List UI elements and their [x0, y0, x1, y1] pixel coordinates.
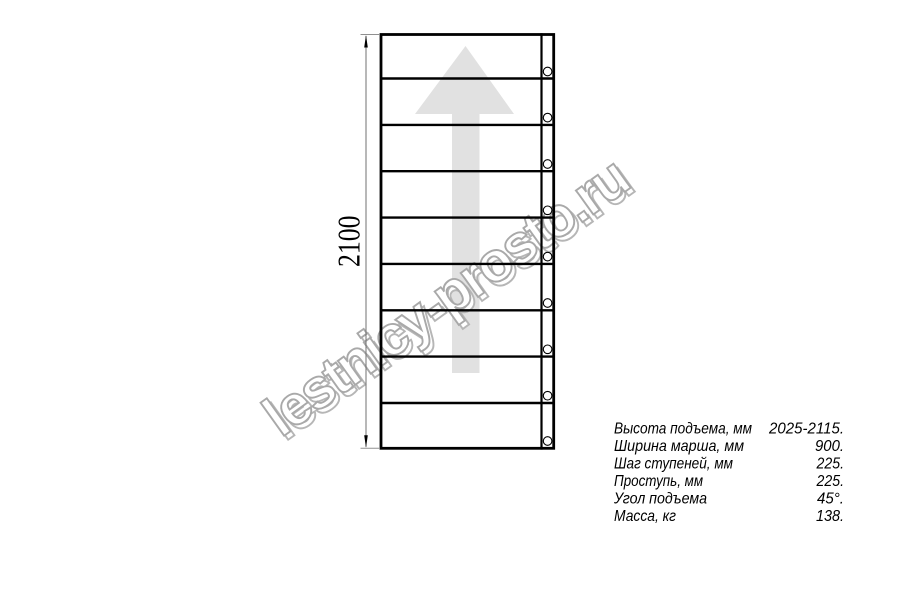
svg-text:2100: 2100 — [331, 216, 367, 268]
svg-text:2025-2115.: 2025-2115. — [768, 421, 844, 438]
svg-text:45°.: 45°. — [817, 491, 844, 508]
svg-text:225.: 225. — [816, 473, 844, 490]
svg-text:Ширина марша, мм: Ширина марша, мм — [614, 438, 744, 455]
svg-text:Угол подъема: Угол подъема — [613, 491, 707, 508]
svg-text:Проступь, мм: Проступь, мм — [614, 473, 703, 490]
svg-text:225.: 225. — [816, 456, 844, 473]
svg-text:900.: 900. — [815, 438, 844, 455]
svg-text:138.: 138. — [816, 508, 844, 525]
svg-text:Масса, кг: Масса, кг — [614, 508, 676, 525]
svg-text:Шаг ступеней, мм: Шаг ступеней, мм — [614, 456, 733, 473]
svg-text:Высота подъема, мм: Высота подъема, мм — [614, 421, 752, 438]
